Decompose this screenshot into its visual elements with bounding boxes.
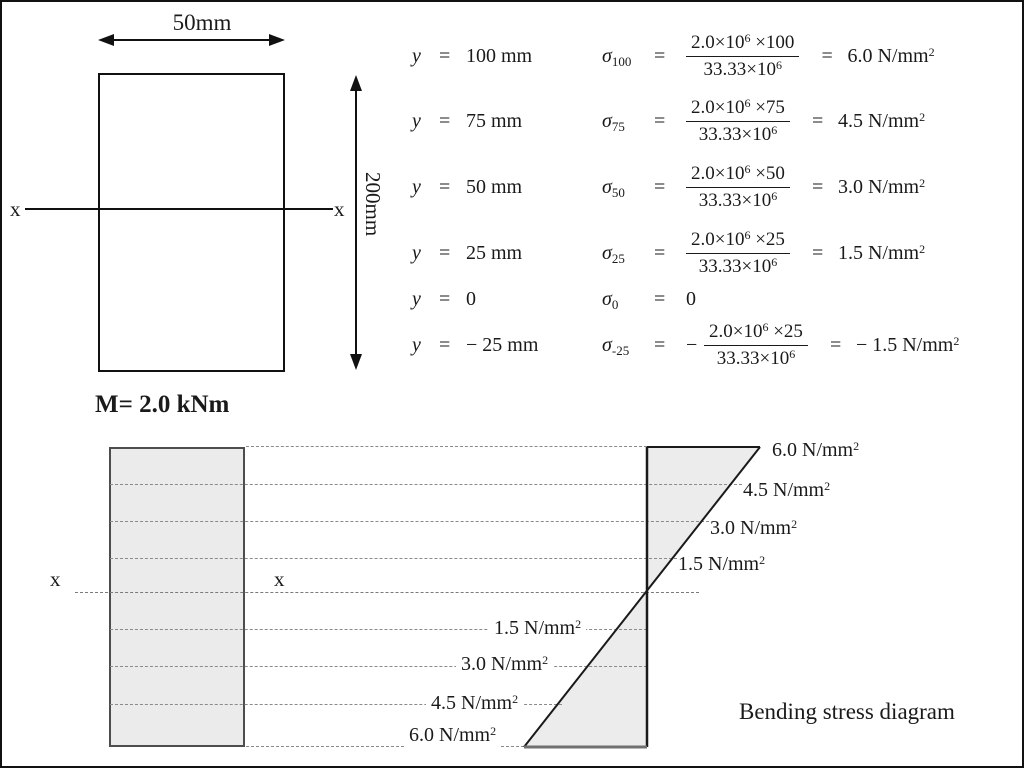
beam-section-rectangle [109, 447, 245, 747]
fraction: 2.0×106 ×100 33.33×106 [686, 32, 799, 81]
arrowhead-right-icon [269, 34, 285, 46]
y-value: 100 mm [466, 45, 602, 68]
fraction-numerator: 2.0×106 ×50 [686, 163, 790, 187]
equals-sign: = [812, 242, 838, 265]
sigma-subscript: -25 [612, 343, 629, 358]
y-symbol: y [412, 45, 439, 68]
sigma-term: σ25 [602, 242, 654, 265]
equals-sign: = [654, 242, 686, 265]
arrowhead-left-icon [98, 34, 114, 46]
sigma-term: σ50 [602, 176, 654, 199]
y-value: 50 mm [466, 176, 602, 199]
equation-row: y = 25 mm σ25 = 2.0×106 ×25 33.33×106 = … [412, 221, 925, 285]
slide: 50mm x x 200mm M= 2.0 kNm y = 100 mm σ10… [0, 0, 1024, 768]
width-dimension-label: 50mm [152, 10, 252, 36]
fraction-numerator: 2.0×106 ×100 [686, 32, 799, 56]
sigma-term: σ100 [602, 45, 654, 68]
fraction: 2.0×106 ×25 33.33×106 [704, 321, 808, 370]
height-dimension-label: 200mm [360, 172, 385, 236]
sigma-subscript: 50 [612, 185, 625, 200]
stress-label-bottom-4-5: 4.5 N/mm2 [426, 692, 523, 715]
stress-result: − 1.5 N/mm2 [856, 334, 959, 357]
stress-label-top-6: 6.0 N/mm2 [772, 439, 859, 462]
fraction: 2.0×106 ×75 33.33×106 [686, 97, 790, 146]
cross-section-rectangle [98, 73, 285, 372]
y-value: 75 mm [466, 110, 602, 133]
y-symbol: y [412, 334, 439, 357]
axis-label-right: x [334, 198, 345, 220]
arrowhead-up-icon [350, 75, 362, 91]
height-dimension-arrow [355, 89, 357, 355]
fraction: 2.0×106 ×50 33.33×106 [686, 163, 790, 212]
stress-label-top-3: 3.0 N/mm2 [710, 517, 797, 540]
equals-sign: = [654, 45, 686, 68]
sigma-symbol: σ [602, 110, 612, 132]
fraction-denominator: 33.33×106 [686, 56, 799, 81]
equation-row: y = 100 mm σ100 = 2.0×106 ×100 33.33×106… [412, 24, 935, 88]
equals-sign: = [821, 45, 847, 68]
neutral-axis-line [25, 208, 333, 210]
stress-result: 1.5 N/mm2 [838, 242, 925, 265]
arrowhead-down-icon [350, 354, 362, 370]
y-symbol: y [412, 242, 439, 265]
y-value: 25 mm [466, 242, 602, 265]
equals-sign: = [654, 176, 686, 199]
equals-sign: = [439, 110, 466, 133]
fraction-numerator: 2.0×106 ×25 [686, 229, 790, 253]
equals-sign: = [439, 176, 466, 199]
equation-row: y = 50 mm σ50 = 2.0×106 ×50 33.33×106 = … [412, 155, 925, 219]
equals-sign: = [654, 334, 686, 357]
stress-result: 4.5 N/mm2 [838, 110, 925, 133]
fraction: 2.0×106 ×25 33.33×106 [686, 229, 790, 278]
stress-label-bottom-3: 3.0 N/mm2 [456, 653, 553, 676]
moment-label: M= 2.0 kNm [95, 391, 229, 419]
sigma-subscript: 0 [612, 297, 619, 312]
y-value: 0 [466, 288, 602, 311]
equation-row: y = − 25 mm σ-25 = − 2.0×106 ×25 33.33×1… [412, 313, 959, 377]
diagram-caption: Bending stress diagram [739, 699, 955, 725]
y-symbol: y [412, 288, 439, 311]
stress-label-bottom-6: 6.0 N/mm2 [404, 724, 501, 747]
stress-label-top-4-5: 4.5 N/mm2 [743, 479, 830, 502]
y-symbol: y [412, 110, 439, 133]
equals-sign: = [654, 288, 686, 311]
equals-sign: = [439, 334, 466, 357]
fraction-denominator: 33.33×106 [686, 121, 790, 146]
sigma-subscript: 25 [612, 251, 625, 266]
stress-label-bottom-1-5: 1.5 N/mm2 [489, 617, 586, 640]
y-value: − 25 mm [466, 334, 602, 357]
axis-label-left: x [10, 198, 21, 220]
minus-sign: − [686, 334, 704, 357]
equals-sign: = [439, 242, 466, 265]
sigma-symbol: σ [602, 242, 612, 264]
sigma-subscript: 75 [612, 119, 625, 134]
sigma-term: σ0 [602, 288, 654, 311]
fraction-numerator: 2.0×106 ×25 [704, 321, 808, 345]
y-symbol: y [412, 176, 439, 199]
stress-result: 0 [686, 288, 696, 311]
width-dimension-arrow [112, 39, 275, 41]
axis-label-mid: x [274, 568, 285, 590]
sigma-term: σ-25 [602, 334, 654, 357]
fraction-numerator: 2.0×106 ×75 [686, 97, 790, 121]
sigma-symbol: σ [602, 45, 612, 67]
equals-sign: = [830, 334, 856, 357]
equals-sign: = [654, 110, 686, 133]
equals-sign: = [439, 45, 466, 68]
sigma-term: σ75 [602, 110, 654, 133]
equals-sign: = [812, 176, 838, 199]
sigma-symbol: σ [602, 288, 612, 310]
stress-label-top-1-5: 1.5 N/mm2 [678, 553, 765, 576]
sigma-symbol: σ [602, 334, 612, 356]
fraction-denominator: 33.33×106 [686, 253, 790, 278]
axis-label-left: x [50, 568, 61, 590]
sigma-symbol: σ [602, 176, 612, 198]
equals-sign: = [439, 288, 466, 311]
stress-result: 6.0 N/mm2 [847, 45, 934, 68]
fraction-denominator: 33.33×106 [704, 345, 808, 370]
fraction-denominator: 33.33×106 [686, 187, 790, 212]
equation-row: y = 0 σ0 = 0 [412, 286, 696, 312]
equation-row: y = 75 mm σ75 = 2.0×106 ×75 33.33×106 = … [412, 89, 925, 153]
stress-result: 3.0 N/mm2 [838, 176, 925, 199]
equals-sign: = [812, 110, 838, 133]
sigma-subscript: 100 [612, 54, 632, 69]
